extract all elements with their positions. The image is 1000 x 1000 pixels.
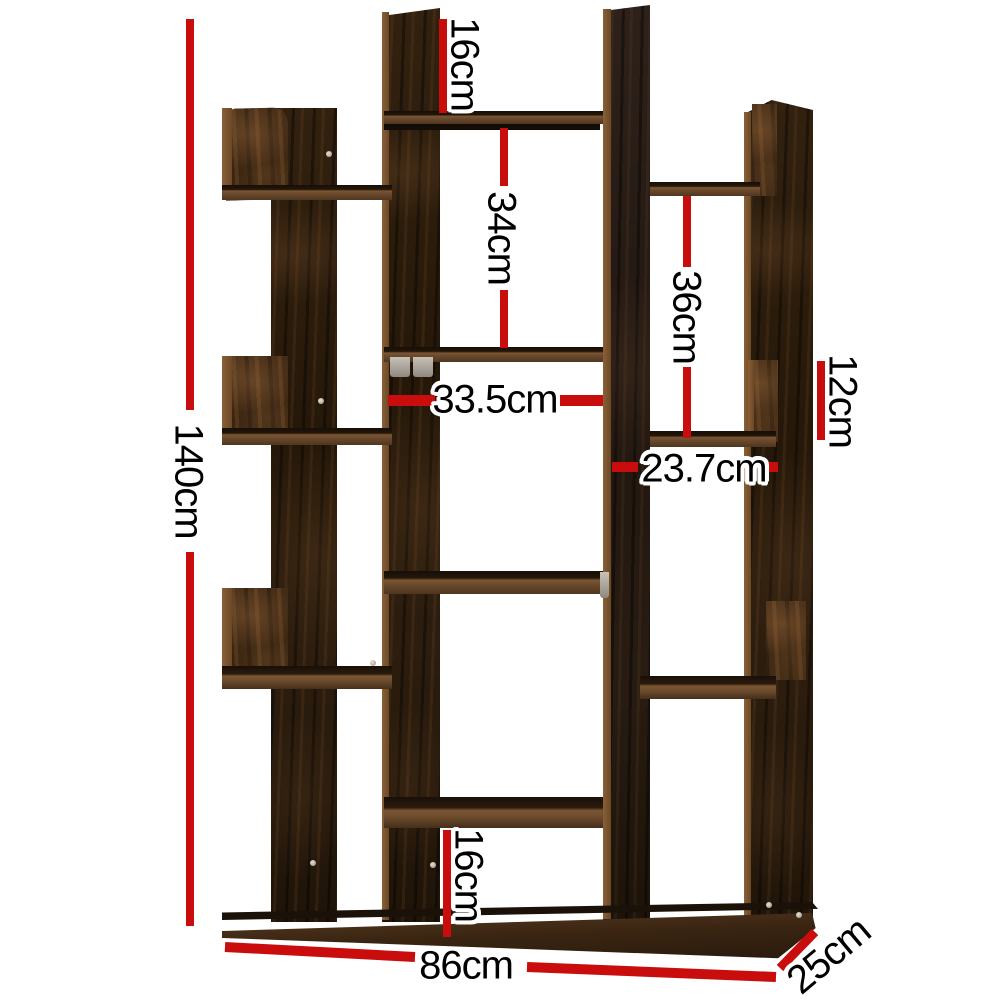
- dim-line-base-width-b: [527, 967, 776, 977]
- dim-line-right-opening-a: [683, 196, 691, 267]
- center-top-shelf: [384, 111, 608, 124]
- center-top-shelf-shadow: [384, 124, 600, 130]
- screw: [796, 912, 802, 918]
- dim-label-base-width: 86cm: [419, 944, 513, 989]
- dim-line-height-upper: [186, 19, 194, 410]
- center-left-panel: [382, 8, 440, 922]
- dim-label-bottom-gap: 16cm: [446, 828, 491, 922]
- left-shelf-3: [222, 666, 392, 689]
- dim-line-upper-opening-a: [500, 128, 508, 186]
- dim-line-height-lower: [186, 552, 194, 926]
- screw: [318, 398, 324, 404]
- screw: [326, 151, 332, 157]
- screw: [370, 660, 376, 666]
- dimension-lines: [0, 0, 1000, 1000]
- dim-label-right-niche: 12cm: [820, 354, 865, 448]
- center-right-panel-edge: [603, 9, 611, 919]
- left-trunk-panel: [271, 108, 337, 922]
- dim-line-center-width-b: [557, 395, 603, 406]
- screw: [430, 862, 436, 868]
- dimension-diagram: 140cm 16cm 34cm 36cm 12cm 33.5cm 23.7cm …: [0, 0, 1000, 1000]
- shelf-bracket: [600, 572, 609, 598]
- right-shelf-1: [648, 182, 760, 196]
- center-left-panel-edge: [382, 12, 389, 920]
- shelf-bracket: [413, 357, 433, 377]
- dim-line-right-opening-b: [683, 367, 691, 438]
- dim-label-right-opening: 36cm: [664, 270, 709, 364]
- right-lower-divider: [766, 601, 806, 680]
- right-shelf-3: [640, 676, 776, 699]
- left-shelf-2: [222, 428, 392, 445]
- dim-line-upper-opening-b: [500, 290, 508, 348]
- right-outer-panel: [744, 100, 813, 938]
- dim-label-top-gap: 16cm: [442, 17, 487, 111]
- dim-label-right-width: 23.7cm: [641, 447, 766, 492]
- screw: [310, 860, 316, 866]
- dim-label-height: 140cm: [166, 423, 211, 538]
- dim-label-upper-opening: 34cm: [479, 191, 524, 285]
- screw: [766, 902, 772, 908]
- right-niche-divider-edge: [748, 360, 754, 442]
- left-shelf-1: [222, 185, 392, 200]
- right-outer-panel-edge: [744, 112, 751, 936]
- dim-line-base-width-a: [225, 947, 415, 957]
- center-shelf-3: [384, 571, 603, 594]
- shelf-bracket: [390, 357, 410, 377]
- center-shelf-4: [384, 797, 603, 828]
- dim-label-center-width: 33.5cm: [432, 378, 557, 423]
